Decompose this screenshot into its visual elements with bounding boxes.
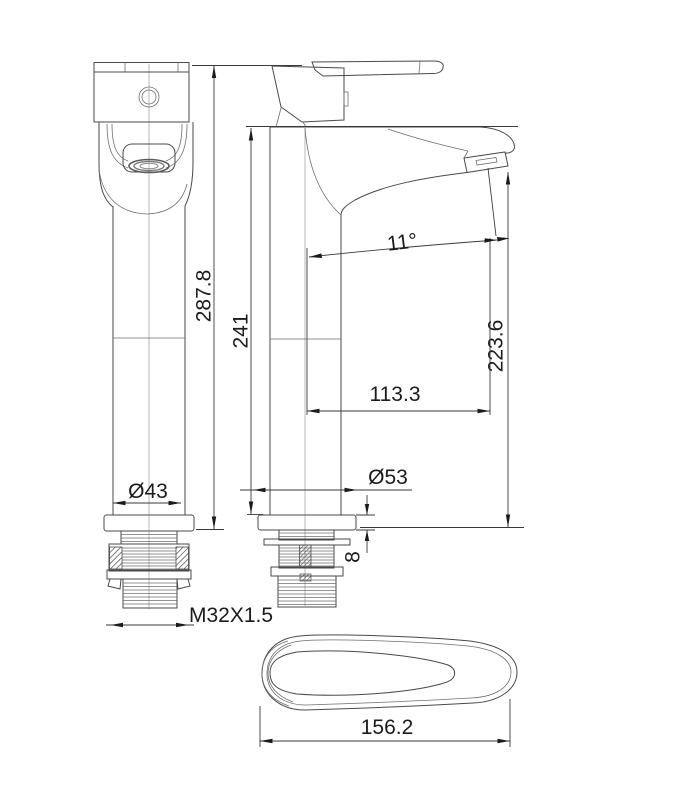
- dim-handle-length: 156.2: [260, 699, 510, 747]
- handle-inner-outline: [267, 640, 511, 705]
- handle-outer-outline: [262, 635, 517, 710]
- side-handle-body: [272, 66, 344, 122]
- dim-spout-angle: 11°: [309, 229, 510, 258]
- side-spout-tip: [480, 127, 515, 153]
- side-handle-lever: [312, 61, 443, 76]
- dim-side-base-diameter: Ø53: [240, 466, 412, 492]
- drawing-canvas: 287.8 241 223.6 113.3: [0, 0, 689, 810]
- dim-total-height: 287.8: [193, 66, 217, 530]
- dim-outlet-height: 223.6: [485, 172, 511, 527]
- dimension-body-height: 241: [230, 313, 253, 348]
- dimension-spout-angle: 11°: [386, 229, 419, 256]
- dimension-side-base-diameter: Ø53: [368, 466, 408, 489]
- side-stud-section: [300, 545, 312, 568]
- dim-body-height: 241: [230, 128, 254, 514]
- side-spout-underside: [341, 173, 467, 516]
- dimension-handle-length: 156.2: [361, 716, 414, 739]
- dim-front-base-diameter: Ø43: [113, 480, 181, 505]
- dim-thread-spec: M32X1.5: [106, 604, 273, 627]
- front-view: [94, 63, 194, 610]
- dimension-base-plate-thickness: 8: [342, 551, 365, 563]
- side-base-flange: [258, 515, 356, 530]
- front-handle-cap: [94, 63, 189, 73]
- front-upper-body: [99, 122, 193, 207]
- side-view: [258, 61, 515, 607]
- handle-top-view: [262, 635, 517, 710]
- side-aerator: [464, 152, 508, 173]
- handle-top-face: [270, 651, 455, 695]
- dimension-thread-spec: M32X1.5: [189, 604, 273, 627]
- dimension-total-height: 287.8: [193, 270, 216, 323]
- faucet-technical-drawing: 287.8 241 223.6 113.3: [0, 0, 689, 810]
- front-handle-body: [94, 72, 189, 122]
- dim-spout-reach: 113.3: [307, 168, 496, 415]
- dimension-spout-reach: 113.3: [370, 383, 421, 406]
- dimension-front-base-diameter: Ø43: [128, 480, 168, 503]
- dimension-outlet-height: 223.6: [485, 320, 508, 373]
